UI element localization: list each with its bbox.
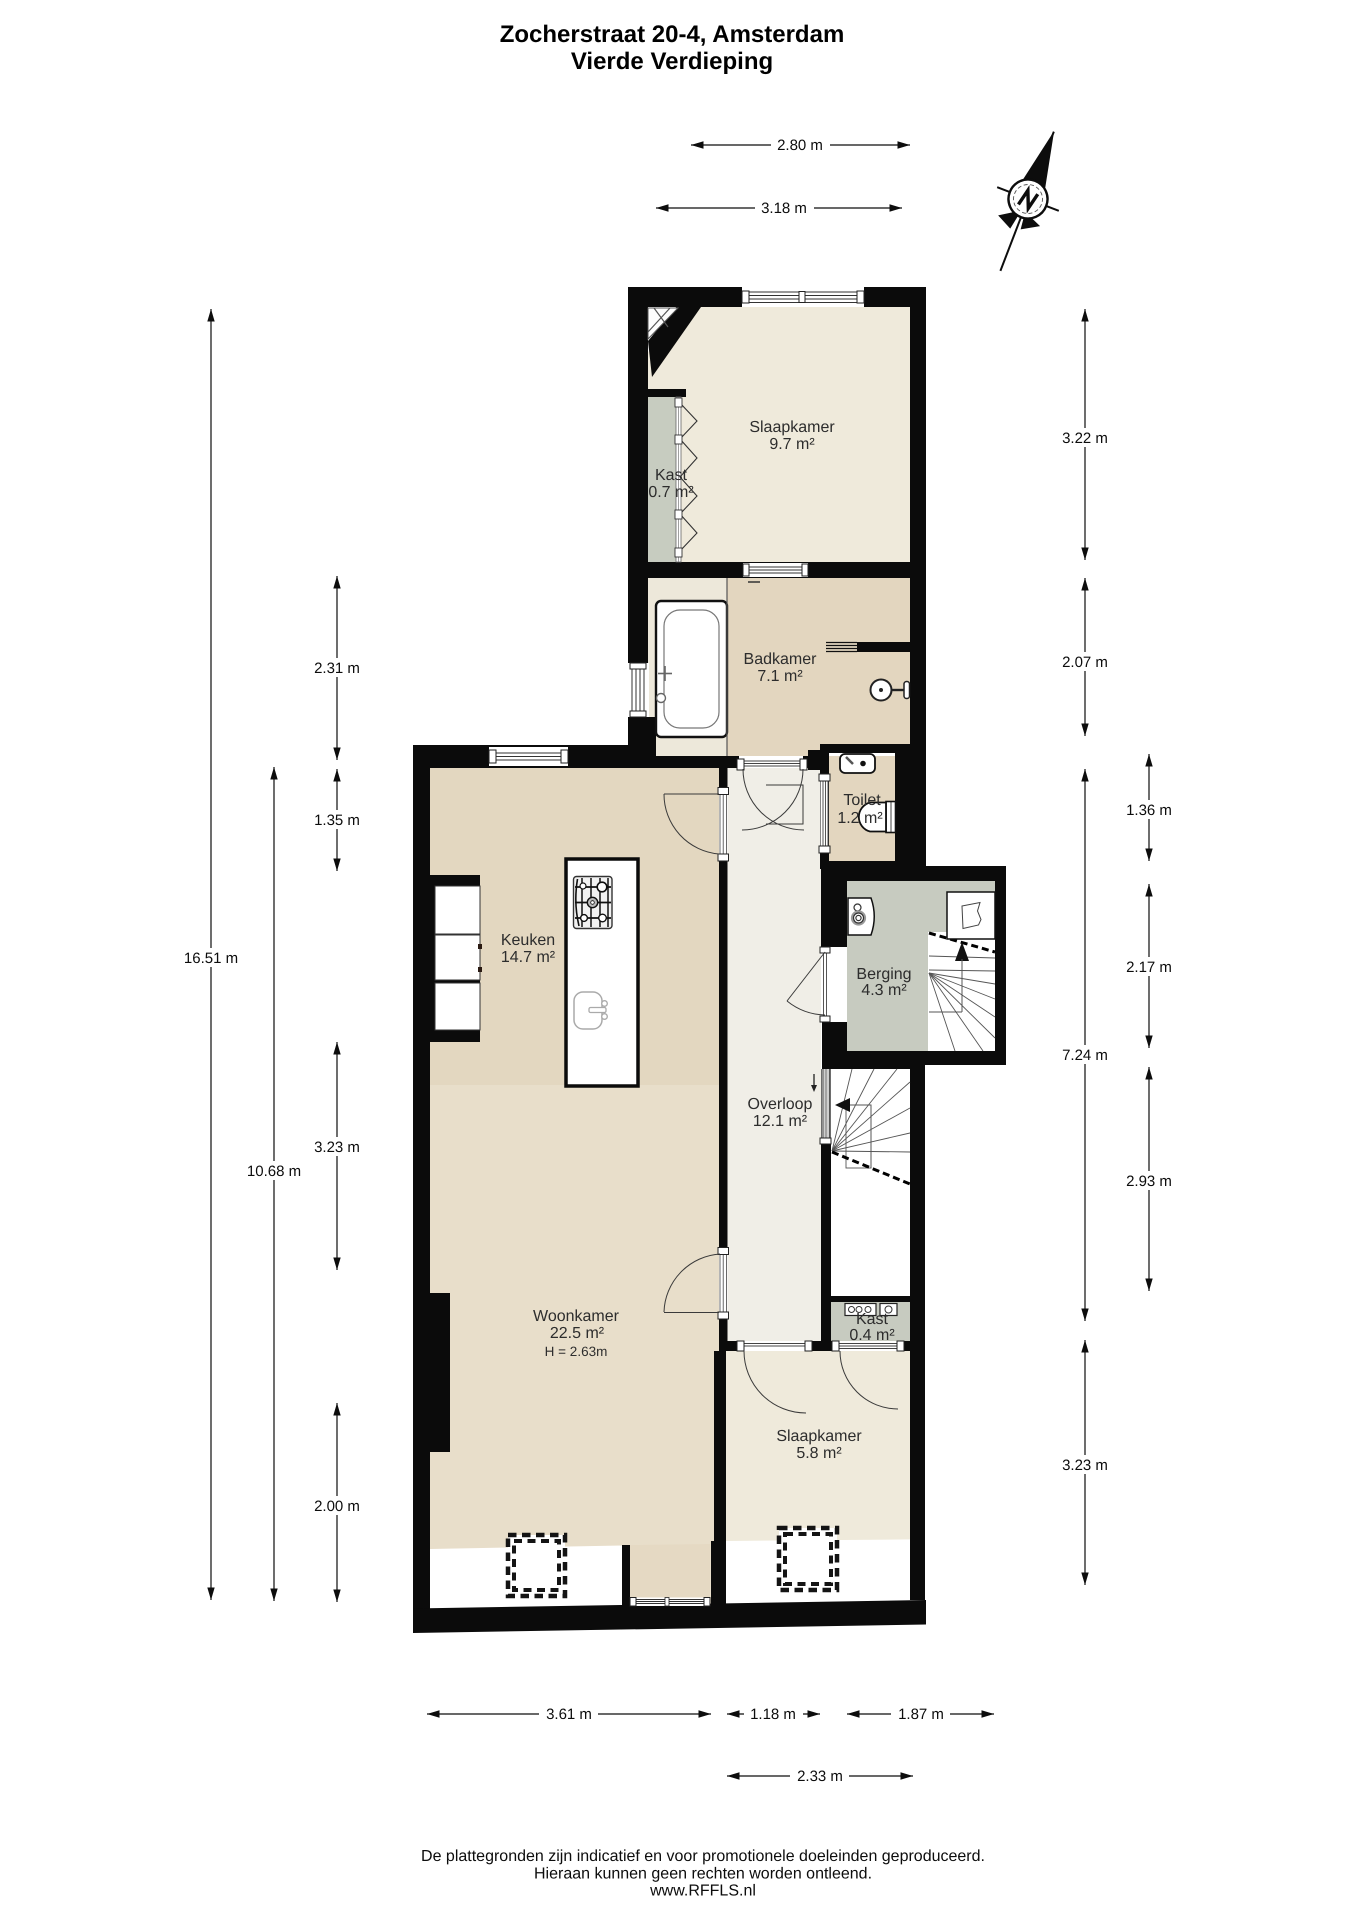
svg-text:Badkamer: Badkamer xyxy=(744,651,818,668)
svg-text:Kast: Kast xyxy=(856,1311,889,1328)
svg-text:14.7 m²: 14.7 m² xyxy=(501,949,556,966)
svg-text:Toilet: Toilet xyxy=(843,792,881,809)
svg-text:10.68 m: 10.68 m xyxy=(247,1163,301,1180)
svg-text:2.17 m: 2.17 m xyxy=(1126,959,1172,976)
svg-text:22.5 m²: 22.5 m² xyxy=(550,1325,605,1342)
svg-text:Keuken: Keuken xyxy=(501,932,555,949)
svg-text:1.18 m: 1.18 m xyxy=(750,1706,796,1723)
svg-text:3.22 m: 3.22 m xyxy=(1062,430,1108,447)
svg-text:Woonkamer: Woonkamer xyxy=(533,1308,620,1325)
svg-text:Hieraan kunnen geen rechten wo: Hieraan kunnen geen rechten worden ontle… xyxy=(534,1866,872,1883)
svg-text:1.87 m: 1.87 m xyxy=(898,1706,944,1723)
svg-text:3.23 m: 3.23 m xyxy=(314,1139,360,1156)
svg-text:2.93 m: 2.93 m xyxy=(1126,1173,1172,1190)
svg-text:1.2 m²: 1.2 m² xyxy=(837,810,883,827)
svg-text:0.7 m²: 0.7 m² xyxy=(648,484,694,501)
svg-text:Slaapkamer: Slaapkamer xyxy=(749,419,835,436)
svg-text:1.36 m: 1.36 m xyxy=(1126,802,1172,819)
svg-text:www.RFFLS.nl: www.RFFLS.nl xyxy=(649,1883,756,1900)
svg-text:Zocherstraat 20-4, Amsterdam: Zocherstraat 20-4, Amsterdam xyxy=(500,21,845,48)
svg-text:1.35 m: 1.35 m xyxy=(314,812,360,829)
svg-text:Berging: Berging xyxy=(856,966,911,983)
svg-text:4.3 m²: 4.3 m² xyxy=(861,982,907,999)
svg-text:3.18 m: 3.18 m xyxy=(761,200,807,217)
svg-text:7.24 m: 7.24 m xyxy=(1062,1047,1108,1064)
svg-text:3.61 m: 3.61 m xyxy=(546,1706,592,1723)
svg-text:3.23 m: 3.23 m xyxy=(1062,1457,1108,1474)
svg-text:De plattegronden zijn indicati: De plattegronden zijn indicatief en voor… xyxy=(421,1848,985,1865)
svg-text:Vierde Verdieping: Vierde Verdieping xyxy=(571,48,773,75)
svg-text:7.1 m²: 7.1 m² xyxy=(757,668,803,685)
svg-text:2.07 m: 2.07 m xyxy=(1062,654,1108,671)
svg-text:Kast: Kast xyxy=(655,467,688,484)
svg-text:5.8 m²: 5.8 m² xyxy=(796,1445,842,1462)
svg-text:12.1 m²: 12.1 m² xyxy=(753,1113,808,1130)
svg-text:2.00 m: 2.00 m xyxy=(314,1498,360,1515)
svg-text:Slaapkamer: Slaapkamer xyxy=(776,1428,862,1445)
svg-text:Overloop: Overloop xyxy=(748,1096,813,1113)
svg-text:H = 2.63m: H = 2.63m xyxy=(545,1344,608,1359)
svg-text:2.31 m: 2.31 m xyxy=(314,660,360,677)
svg-text:9.7 m²: 9.7 m² xyxy=(769,436,815,453)
svg-text:2.80 m: 2.80 m xyxy=(777,137,823,154)
svg-text:2.33 m: 2.33 m xyxy=(797,1768,843,1785)
svg-text:16.51 m: 16.51 m xyxy=(184,950,238,967)
svg-text:0.4 m²: 0.4 m² xyxy=(849,1327,895,1344)
